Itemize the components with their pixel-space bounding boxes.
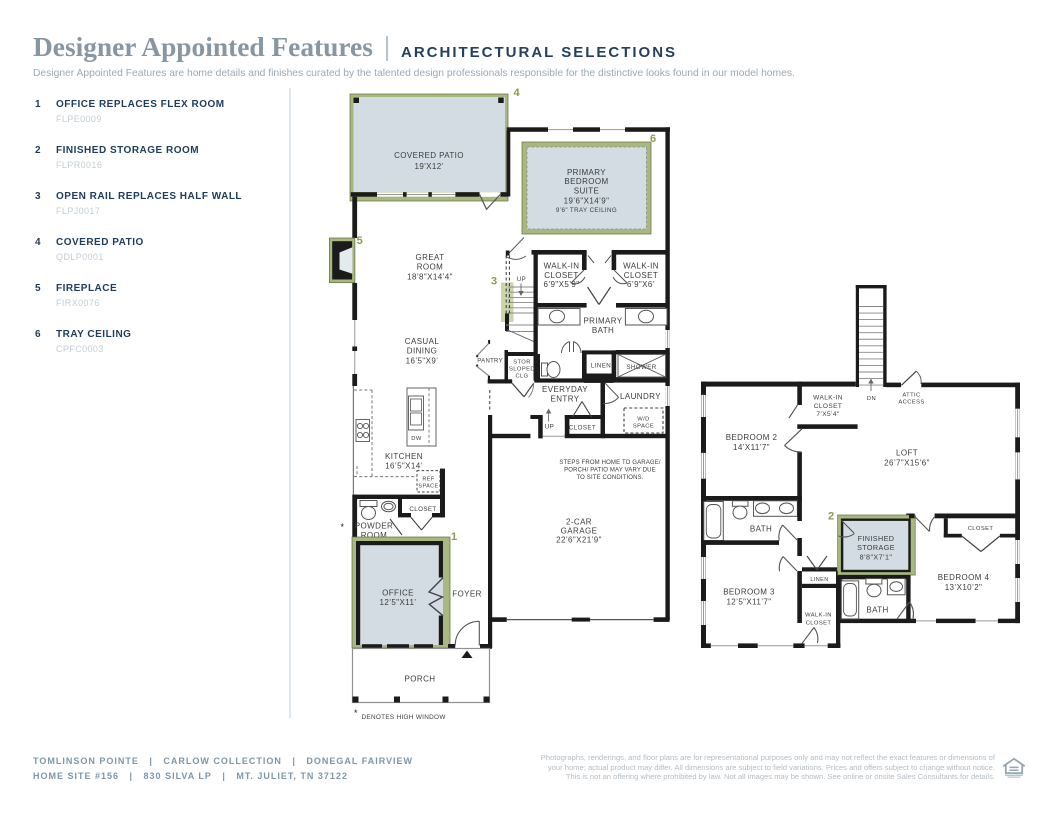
svg-text:COVERED PATIO: COVERED PATIO [394, 151, 464, 160]
svg-text:CASUAL: CASUAL [405, 337, 440, 346]
svg-text:TO SITE CONDITIONS.: TO SITE CONDITIONS. [576, 475, 643, 481]
svg-text:EVERYDAY: EVERYDAY [542, 385, 588, 394]
svg-text:UP: UP [517, 276, 526, 283]
svg-text:16’5"X14’: 16’5"X14’ [385, 461, 423, 470]
svg-text:6’9"X5’9": 6’9"X5’9" [544, 280, 580, 289]
svg-text:9’6" TRAY CEILING: 9’6" TRAY CEILING [556, 207, 617, 214]
svg-text:4: 4 [513, 87, 520, 99]
svg-text:SPACE: SPACE [633, 424, 654, 430]
svg-text:REF: REF [422, 477, 434, 483]
svg-text:LOFT: LOFT [896, 449, 918, 458]
svg-text:WALK-IN: WALK-IN [805, 613, 832, 619]
svg-text:SPACE: SPACE [418, 484, 438, 490]
svg-text:DN: DN [867, 396, 876, 402]
svg-text:CLOSET: CLOSET [409, 506, 436, 513]
svg-text:SUITE: SUITE [574, 186, 600, 195]
svg-text:8’8"X7’1": 8’8"X7’1" [860, 553, 893, 562]
svg-text:WALK-IN: WALK-IN [623, 262, 659, 271]
svg-text:CLOSET: CLOSET [968, 526, 994, 532]
svg-text:16’5"X9’: 16’5"X9’ [406, 357, 439, 366]
svg-text:LINEN: LINEN [591, 363, 611, 370]
svg-text:OFFICE: OFFICE [382, 589, 414, 598]
svg-text:2: 2 [828, 511, 834, 523]
svg-text:BEDROOM 2: BEDROOM 2 [726, 433, 778, 442]
svg-text:POWDER: POWDER [355, 522, 393, 531]
svg-text:BEDROOM 3: BEDROOM 3 [723, 588, 775, 597]
svg-text:12’5"X11’7": 12’5"X11’7" [726, 597, 771, 606]
svg-text:ACCESS: ACCESS [898, 400, 924, 406]
svg-text:BATH: BATH [592, 326, 614, 335]
svg-text:CLOSET: CLOSET [814, 403, 842, 410]
svg-text:CLOSET: CLOSET [569, 425, 596, 432]
svg-text:22’6"X21’9": 22’6"X21’9" [556, 536, 602, 545]
svg-text:CLOSET: CLOSET [624, 271, 658, 280]
svg-text:SHOWER: SHOWER [626, 364, 656, 371]
svg-text:ROOM: ROOM [417, 263, 444, 272]
svg-text:ENTRY: ENTRY [551, 395, 580, 404]
svg-text:PRIMARY: PRIMARY [583, 316, 622, 325]
svg-text:26’7"X15’6": 26’7"X15’6" [884, 458, 930, 467]
svg-text:DINING: DINING [407, 347, 437, 356]
svg-text:CLOSET: CLOSET [806, 621, 832, 627]
svg-text:19'X12': 19'X12' [415, 162, 444, 171]
svg-text:13’X10’2": 13’X10’2" [945, 583, 983, 592]
svg-text:PRIMARY: PRIMARY [567, 168, 606, 177]
svg-text:DENOTES HIGH WINDOW: DENOTES HIGH WINDOW [362, 714, 447, 721]
svg-text:BEDROOM: BEDROOM [564, 177, 608, 186]
svg-text:7’X5’4": 7’X5’4" [816, 411, 839, 418]
svg-text:LAUNDRY: LAUNDRY [620, 392, 661, 401]
svg-text:BATH: BATH [866, 606, 888, 615]
svg-text:CLOSET: CLOSET [544, 271, 578, 280]
svg-text:STOR: STOR [513, 360, 531, 366]
svg-text:DW: DW [411, 436, 422, 442]
svg-text:BATH: BATH [750, 525, 772, 534]
svg-text:PORCH: PORCH [405, 675, 436, 684]
svg-text:PORCH/ PATIO MAY VARY DUE: PORCH/ PATIO MAY VARY DUE [564, 468, 656, 474]
svg-text:UP: UP [545, 424, 554, 431]
svg-text:STORAGE: STORAGE [857, 543, 895, 552]
svg-text:PANTRY: PANTRY [477, 359, 503, 365]
svg-text:LINEN: LINEN [810, 577, 828, 583]
svg-text:SLOPED: SLOPED [509, 367, 535, 373]
svg-text:FINISHED: FINISHED [858, 534, 895, 543]
svg-text:W/D: W/D [637, 417, 649, 423]
svg-text:6’9"X6’: 6’9"X6’ [627, 280, 655, 289]
svg-text:3: 3 [491, 276, 497, 288]
svg-text:GREAT: GREAT [416, 253, 445, 262]
svg-text:CLG: CLG [515, 374, 528, 380]
svg-text:*: * [354, 708, 358, 718]
svg-text:ATTIC: ATTIC [902, 393, 920, 399]
svg-text:BEDROOM 4: BEDROOM 4 [938, 573, 990, 582]
svg-text:KITCHEN: KITCHEN [385, 452, 423, 461]
svg-text:12’5"X11’: 12’5"X11’ [380, 598, 417, 607]
svg-text:2-CAR: 2-CAR [566, 517, 592, 526]
svg-text:*: * [341, 522, 345, 532]
svg-text:6: 6 [650, 133, 656, 145]
svg-text:GARAGE: GARAGE [561, 526, 598, 535]
svg-text:5: 5 [357, 235, 363, 247]
svg-text:FOYER: FOYER [452, 590, 482, 599]
svg-text:WALK-IN: WALK-IN [813, 395, 843, 402]
svg-text:STEPS FROM HOME TO GARAGE/: STEPS FROM HOME TO GARAGE/ [559, 460, 661, 466]
svg-text:1: 1 [451, 531, 457, 543]
svg-text:19’6"X14’9": 19’6"X14’9" [564, 197, 610, 206]
svg-text:WALK-IN: WALK-IN [544, 262, 580, 271]
svg-text:18’8"X14’4": 18’8"X14’4" [407, 273, 453, 282]
svg-text:14’X11’7": 14’X11’7" [733, 443, 770, 452]
